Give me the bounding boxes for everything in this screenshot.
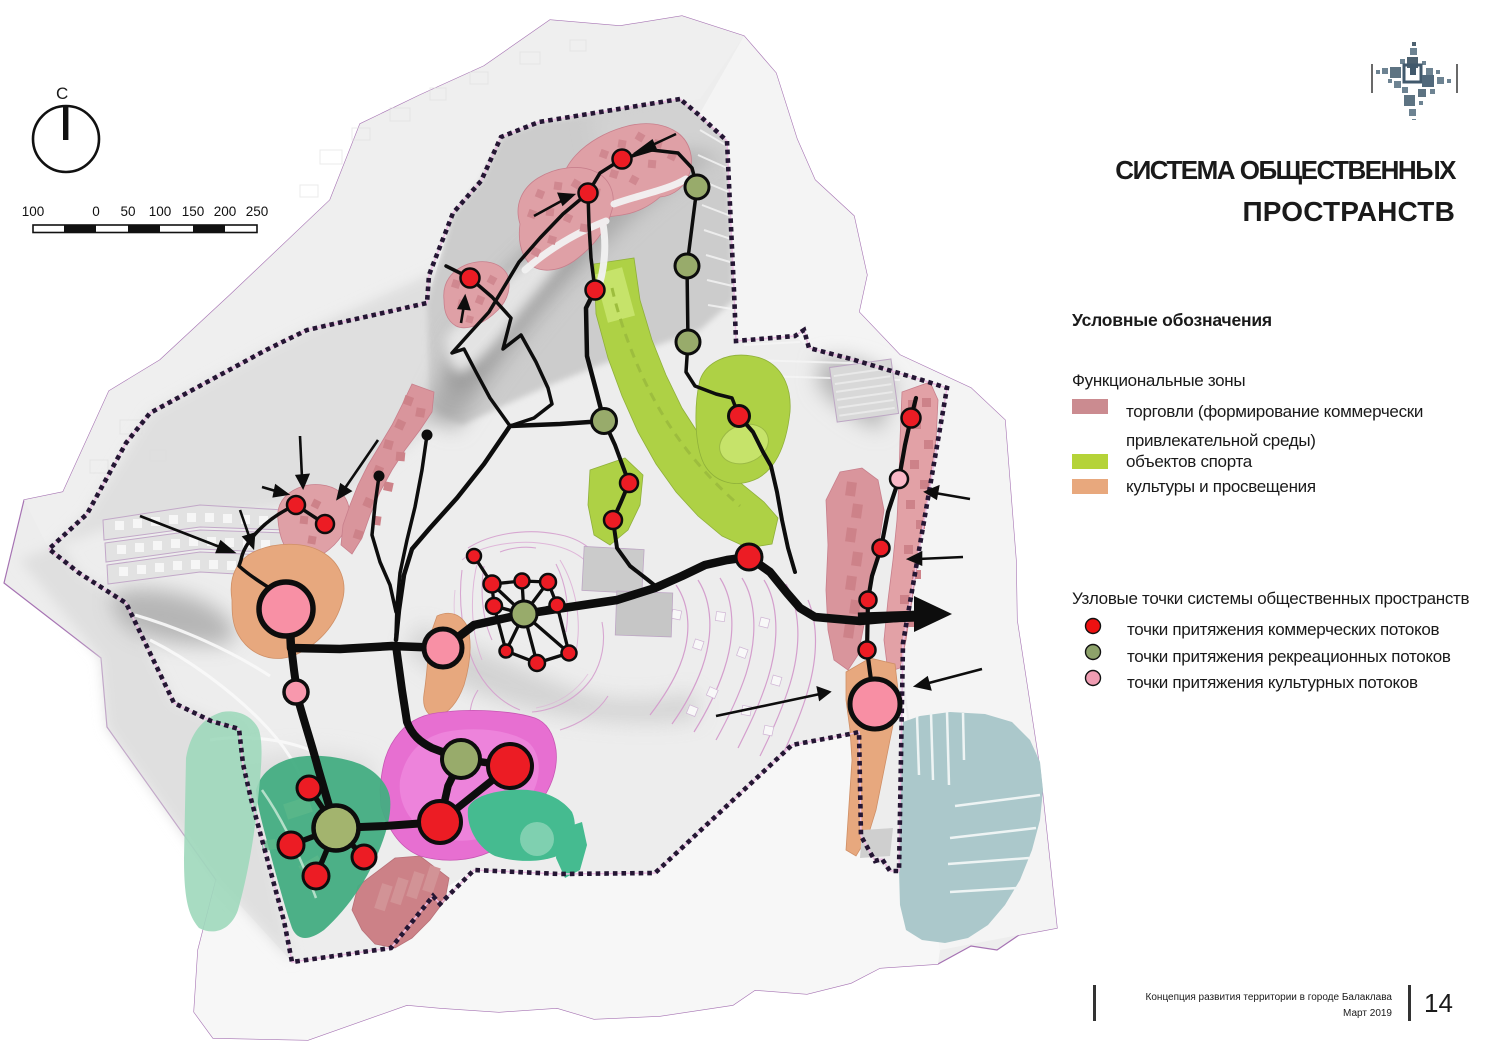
svg-text:250: 250	[246, 204, 269, 219]
svg-text:0: 0	[92, 204, 100, 219]
svg-text:200: 200	[214, 204, 237, 219]
svg-text:100: 100	[149, 204, 172, 219]
svg-text:100: 100	[22, 204, 45, 219]
svg-text:50: 50	[120, 204, 135, 219]
svg-text:150: 150	[182, 204, 205, 219]
